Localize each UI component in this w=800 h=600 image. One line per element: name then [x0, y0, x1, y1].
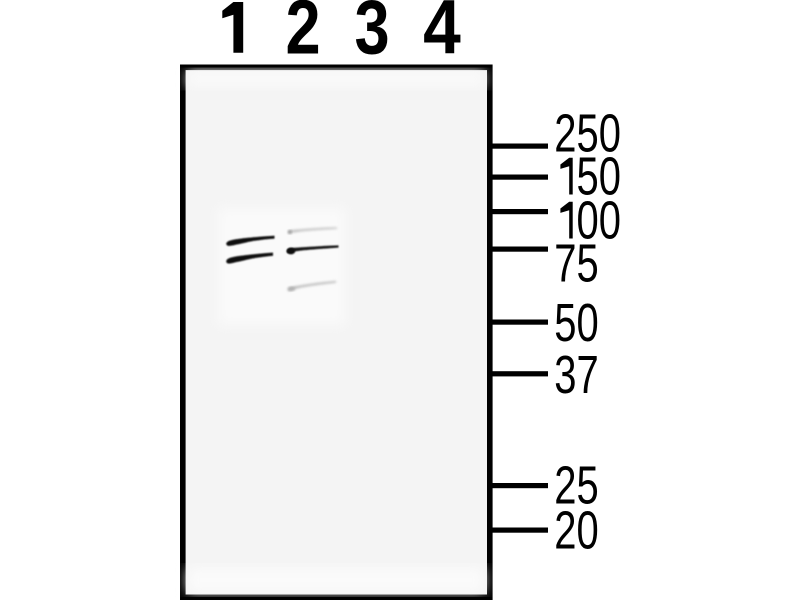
svg-text:75: 75 [554, 234, 598, 294]
svg-text:3: 3 [354, 0, 389, 70]
svg-text:20: 20 [554, 501, 598, 561]
svg-text:2: 2 [285, 0, 320, 70]
svg-text:4: 4 [423, 0, 461, 70]
svg-text:37: 37 [554, 345, 598, 405]
